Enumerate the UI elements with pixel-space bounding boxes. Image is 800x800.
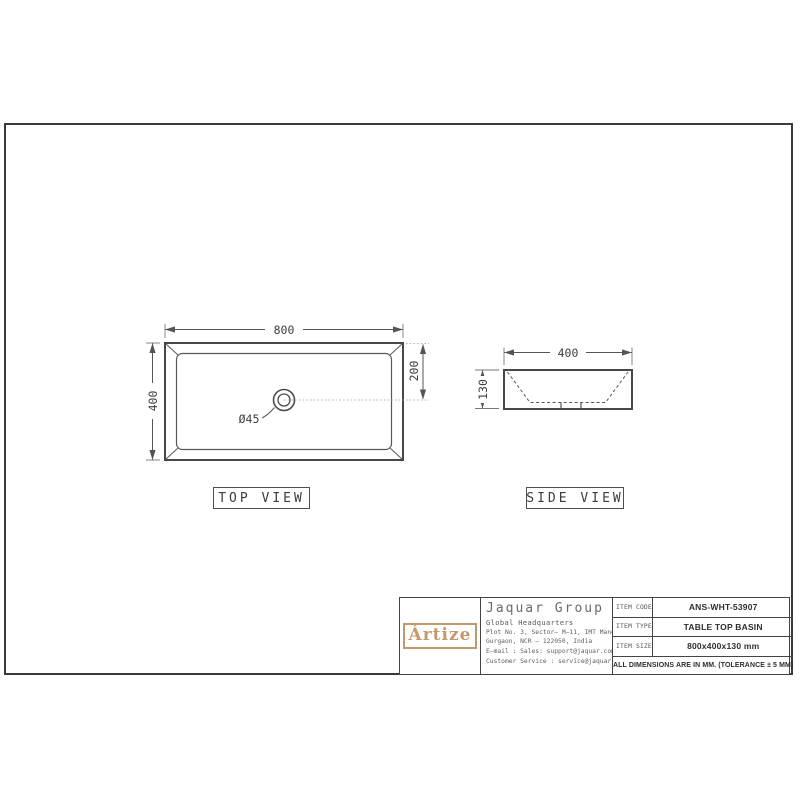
item-type-label: ITEM TYPE — [613, 618, 653, 637]
dim-side-width: 400 — [558, 346, 579, 360]
dim-drain-diameter: Ø45 — [239, 412, 260, 426]
item-type-value: TABLE TOP BASIN — [653, 618, 793, 637]
top-view-drawing: 800 400 200 Ø45 — [145, 322, 429, 460]
dim-top-width: 800 — [274, 323, 295, 337]
basin-side-profile — [504, 370, 632, 409]
title-block: Ártize Jaquar Group Global Headquarters … — [399, 597, 790, 675]
title-block-item-table: ITEM CODE ANS-WHT-53907 ITEM TYPE TABLE … — [613, 598, 793, 674]
artize-logo-text: Ártize — [409, 625, 472, 645]
company-address-2: Gurgaon, NCR – 122050, India — [486, 638, 612, 645]
dim-drain-offset: 200 — [407, 361, 421, 382]
side-view-drawing: 400 130 — [475, 345, 632, 409]
dim-side-height: 130 — [476, 379, 490, 400]
company-email: E–mail : Sales: support@jaquar.com — [486, 648, 612, 655]
table-row: ITEM TYPE TABLE TOP BASIN — [613, 618, 793, 638]
item-code-label: ITEM CODE — [613, 598, 653, 617]
item-code-value: ANS-WHT-53907 — [653, 598, 793, 617]
artize-logo: Ártize — [403, 623, 478, 649]
top-view-label-text: TOP VIEW — [218, 491, 305, 506]
table-row: ITEM SIZE 800x400x130 mm — [613, 637, 793, 657]
company-hq: Global Headquarters — [486, 619, 612, 627]
title-block-company-cell: Jaquar Group Global Headquarters Plot No… — [481, 598, 613, 674]
item-size-label: ITEM SIZE — [613, 637, 653, 656]
table-row: ITEM CODE ANS-WHT-53907 — [613, 598, 793, 618]
dim-top-height: 400 — [146, 391, 160, 412]
technical-drawing: 800 400 200 Ø45 400 130 — [0, 0, 800, 800]
item-size-value: 800x400x130 mm — [653, 637, 793, 656]
tolerance-note: ALL DIMENSIONS ARE IN MM. (TOLERANCE ± 5… — [613, 657, 793, 675]
company-customer-service: Customer Service : service@jaquar.com — [486, 658, 612, 665]
side-view-label: SIDE VIEW — [526, 487, 624, 509]
top-view-label: TOP VIEW — [213, 487, 310, 509]
company-name: Jaquar Group — [486, 601, 612, 616]
side-view-label-text: SIDE VIEW — [526, 491, 623, 506]
title-block-logo-cell: Ártize — [400, 598, 481, 674]
company-address-1: Plot No. 3, Sector– M–11, IMT Manesar — [486, 629, 612, 636]
